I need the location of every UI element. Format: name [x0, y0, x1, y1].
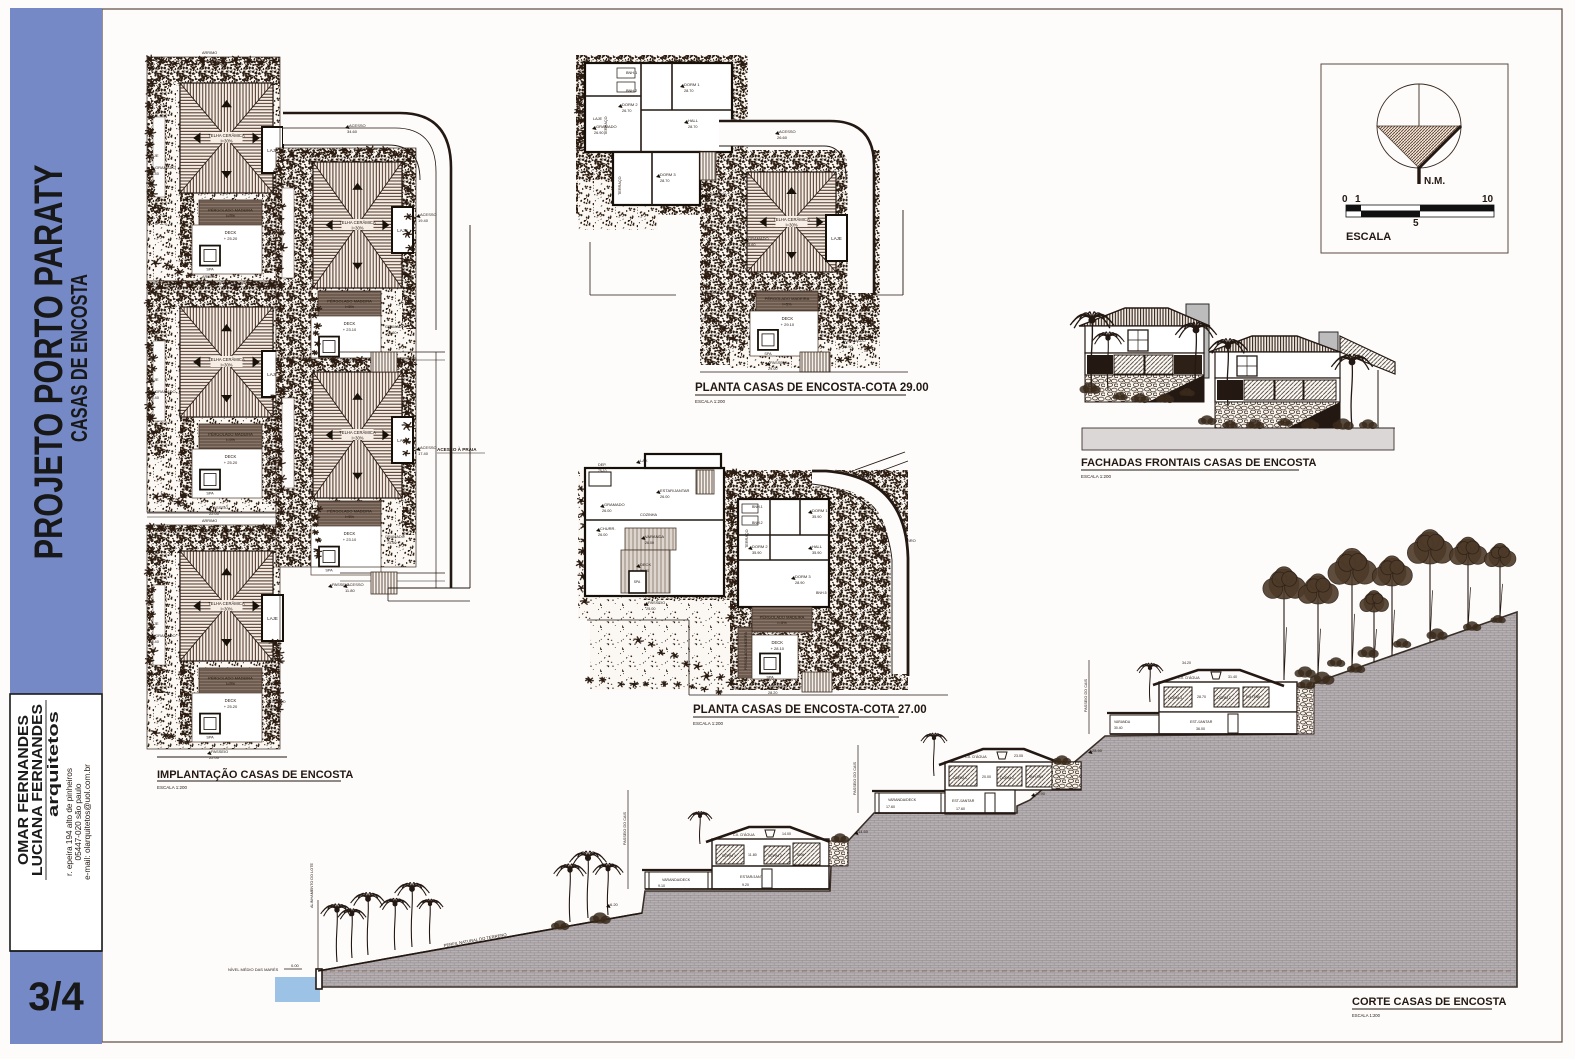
svg-text:23.05: 23.05 — [1014, 754, 1023, 758]
svg-text:ESTAR/JANTAR: ESTAR/JANTAR — [660, 488, 690, 493]
svg-text:5: 5 — [1413, 218, 1419, 229]
svg-text:ARRIMO: ARRIMO — [202, 51, 217, 55]
svg-text:PLANTA CASAS DE ENCOSTA-COTA 2: PLANTA CASAS DE ENCOSTA-COTA 27.00 — [693, 704, 927, 716]
svg-text:28.20: 28.20 — [768, 691, 778, 695]
svg-text:ALINHAMENTO DO LOTE: ALINHAMENTO DO LOTE — [310, 862, 314, 908]
svg-text:26.40: 26.40 — [149, 395, 160, 400]
svg-text:ACESSO: ACESSO — [347, 582, 364, 587]
svg-text:35.90: 35.90 — [812, 551, 822, 555]
svg-text:LAJE: LAJE — [149, 153, 159, 158]
svg-text:PÉRGOLADO MADEIRA: PÉRGOLADO MADEIRA — [208, 432, 253, 437]
svg-text:PASSEIO: PASSEIO — [648, 600, 665, 605]
svg-text:PLANTA CASAS DE ENCOSTA-COTA 2: PLANTA CASAS DE ENCOSTA-COTA 29.00 — [695, 382, 929, 394]
svg-text:25.60: 25.60 — [387, 331, 397, 335]
svg-text:PERGOLADO MADEIRA: PERGOLADO MADEIRA — [744, 631, 748, 670]
svg-text:r. epeira 194 alto de pinheir: r. epeira 194 alto de pinheiros — [65, 768, 74, 876]
svg-text:EST./JANTAR: EST./JANTAR — [952, 799, 975, 803]
svg-text:I=5%: I=5% — [226, 681, 236, 686]
svg-text:ACESSO: ACESSO — [779, 129, 796, 134]
svg-text:BNH BNH: BNH BNH — [1246, 695, 1261, 699]
svg-text:DECK: DECK — [344, 321, 356, 326]
svg-text:LAJE: LAJE — [267, 616, 278, 621]
svg-text:36.00: 36.00 — [1196, 727, 1205, 731]
svg-text:DORM 2: DORM 2 — [752, 544, 768, 549]
svg-text:ESCALA 1:200: ESCALA 1:200 — [693, 721, 724, 726]
svg-text:30.40: 30.40 — [1114, 726, 1123, 730]
svg-text:CORTE CASAS DE ENCOSTA: CORTE CASAS DE ENCOSTA — [1352, 996, 1506, 1008]
svg-text:+ 25.20: + 25.20 — [224, 704, 238, 709]
svg-text:14.00: 14.00 — [782, 832, 791, 836]
svg-text:25.00: 25.00 — [646, 607, 656, 611]
svg-text:GRAMADO: GRAMADO — [604, 502, 625, 507]
svg-text:GRAMADO: GRAMADO — [596, 124, 617, 129]
svg-text:PÉRGOLADO MADEIRA: PÉRGOLADO MADEIRA — [327, 509, 372, 514]
svg-text:28.90: 28.90 — [1092, 748, 1103, 753]
svg-text:25.10: 25.10 — [863, 511, 873, 515]
svg-text:+ 25.20: + 25.20 — [224, 460, 238, 465]
svg-text:+ 23.10: + 23.10 — [343, 327, 357, 332]
svg-text:I=30%: I=30% — [221, 139, 233, 144]
svg-text:VARANDA: VARANDA — [1114, 720, 1131, 724]
svg-text:e-mail: olarquitetos@uol.com.b: e-mail: olarquitetos@uol.com.br — [83, 764, 92, 880]
svg-text:DECK: DECK — [225, 454, 237, 459]
svg-text:+ 23.10: + 23.10 — [343, 537, 357, 542]
svg-text:17.60: 17.60 — [886, 805, 895, 809]
svg-text:ACESSO: ACESSO — [420, 212, 437, 217]
svg-text:17.60: 17.60 — [956, 807, 965, 811]
svg-text:TERRAÇO: TERRAÇO — [745, 529, 749, 548]
svg-text:29.00: 29.00 — [768, 367, 778, 371]
svg-text:26.90: 26.90 — [594, 131, 604, 135]
svg-text:VARANDA/DECK: VARANDA/DECK — [888, 798, 917, 802]
svg-text:25.60: 25.60 — [746, 243, 756, 247]
svg-text:DECK: DECK — [344, 531, 356, 536]
svg-text:35.90: 35.90 — [812, 515, 822, 519]
svg-text:19.40: 19.40 — [418, 218, 429, 223]
svg-text:I=5%: I=5% — [226, 437, 236, 442]
svg-text:DORM 1: DORM 1 — [953, 776, 967, 780]
svg-text:PÉRGOLADO MADEIRA: PÉRGOLADO MADEIRA — [208, 676, 253, 681]
svg-text:28.70: 28.70 — [660, 179, 670, 183]
svg-text:TELHA CERÂMICA: TELHA CERÂMICA — [773, 217, 810, 222]
svg-text:ARRIMO: ARRIMO — [735, 687, 750, 691]
svg-text:I=5%: I=5% — [345, 304, 355, 309]
svg-text:22.00: 22.00 — [209, 755, 220, 760]
svg-text:NÍVEL MÉDIO DAS MARÉS: NÍVEL MÉDIO DAS MARÉS — [228, 967, 279, 972]
svg-text:LAJE: LAJE — [149, 377, 159, 382]
svg-text:DORM 1: DORM 1 — [722, 854, 736, 858]
svg-text:26.70: 26.70 — [622, 109, 632, 113]
svg-text:LAJE: LAJE — [736, 220, 740, 230]
svg-text:DORM 2: DORM 2 — [622, 102, 638, 107]
svg-text:ESCALA 1:200: ESCALA 1:200 — [1081, 474, 1112, 479]
svg-text:DECK: DECK — [225, 230, 237, 235]
svg-text:DECK: DECK — [782, 316, 794, 321]
svg-text:11.80: 11.80 — [345, 588, 355, 593]
svg-text:35.90: 35.90 — [752, 551, 762, 555]
svg-text:DORM 3: DORM 3 — [660, 172, 676, 177]
svg-text:26.00: 26.00 — [602, 509, 612, 513]
svg-text:GRAMADO: GRAMADO — [155, 633, 176, 638]
svg-text:PASSEIO DO CAIS: PASSEIO DO CAIS — [853, 761, 857, 795]
svg-text:I=5%: I=5% — [345, 514, 355, 519]
svg-text:PASSEIO: PASSEIO — [211, 505, 228, 510]
svg-text:LAJE: LAJE — [831, 236, 842, 241]
svg-text:+ 29.10: + 29.10 — [781, 322, 795, 327]
svg-text:PASSEIO: PASSEIO — [770, 684, 787, 689]
svg-text:SPA: SPA — [325, 569, 333, 573]
svg-text:GRAMADO: GRAMADO — [704, 290, 725, 295]
svg-text:3/4: 3/4 — [28, 975, 84, 1019]
svg-text:arquitetos: arquitetos — [45, 711, 62, 817]
svg-text:CHURR.: CHURR. — [600, 526, 616, 531]
svg-text:TELHA CERÂMICA: TELHA CERÂMICA — [208, 601, 245, 606]
svg-text:23.00: 23.00 — [858, 633, 868, 637]
svg-text:I=5%: I=5% — [777, 620, 787, 625]
svg-text:0.00: 0.00 — [291, 963, 300, 968]
svg-text:BNH.2: BNH.2 — [626, 89, 637, 93]
svg-text:COZINHA: COZINHA — [640, 513, 658, 517]
svg-text:26.40: 26.40 — [149, 171, 160, 176]
svg-text:ESCALA: ESCALA — [1346, 231, 1391, 243]
svg-text:26.60: 26.60 — [777, 135, 788, 140]
svg-text:ARRIMO: ARRIMO — [202, 519, 217, 523]
svg-text:SPA: SPA — [206, 492, 214, 496]
svg-text:+ 28.10: + 28.10 — [771, 646, 785, 651]
svg-text:ACESSO: ACESSO — [349, 123, 366, 128]
svg-text:9.10: 9.10 — [658, 884, 665, 888]
svg-text:20.00: 20.00 — [982, 775, 991, 779]
svg-text:DEP.: DEP. — [598, 463, 606, 467]
svg-text:GRAMADO: GRAMADO — [266, 700, 286, 704]
svg-text:28.70: 28.70 — [684, 89, 694, 93]
svg-text:05447-020 são paulo: 05447-020 são paulo — [74, 783, 83, 860]
svg-text:IMPLANTAÇÃO CASAS DE ENCOSTA: IMPLANTAÇÃO CASAS DE ENCOSTA — [157, 768, 353, 781]
svg-text:ACESSO À PRAIA: ACESSO À PRAIA — [437, 446, 477, 452]
svg-text:BNH.2: BNH.2 — [752, 521, 763, 525]
svg-text:SPA: SPA — [206, 268, 214, 272]
svg-text:TELHA CERÂMICA: TELHA CERÂMICA — [208, 357, 245, 362]
svg-text:9.20: 9.20 — [742, 883, 749, 887]
svg-text:CX. D'ÁGUA: CX. D'ÁGUA — [965, 755, 987, 759]
svg-text:I=30%: I=30% — [221, 363, 233, 368]
svg-text:26.00: 26.00 — [645, 541, 654, 545]
svg-text:ARRIMO: ARRIMO — [202, 275, 217, 279]
svg-text:10: 10 — [1482, 194, 1494, 205]
svg-text:29.90: 29.90 — [843, 345, 853, 349]
svg-text:HALL: HALL — [688, 118, 699, 123]
svg-text:DORM 3: DORM 3 — [795, 574, 811, 579]
svg-text:BNH: BNH — [797, 853, 805, 857]
svg-text:75-10: 75-10 — [598, 469, 607, 473]
svg-text:SPA: SPA — [206, 736, 214, 740]
svg-text:VARANDA/DECK: VARANDA/DECK — [662, 878, 691, 882]
svg-text:ACESSO: ACESSO — [420, 445, 437, 450]
svg-text:28.70: 28.70 — [1197, 695, 1206, 699]
svg-text:SPA: SPA — [764, 352, 772, 356]
svg-text:DORM 2: DORM 2 — [768, 854, 782, 858]
svg-text:0: 0 — [1342, 194, 1348, 205]
svg-text:BNH.5: BNH.5 — [816, 591, 827, 595]
svg-text:DORM 1: DORM 1 — [684, 82, 700, 87]
svg-text:CX. D'ÁGUA: CX. D'ÁGUA — [733, 833, 755, 837]
svg-text:HALL: HALL — [812, 544, 823, 549]
svg-text:GRAMADO: GRAMADO — [155, 389, 176, 394]
svg-text:LAJE: LAJE — [593, 117, 603, 121]
svg-text:23.90: 23.90 — [702, 297, 712, 301]
svg-text:DORM 1: DORM 1 — [812, 508, 828, 513]
svg-text:DORM 3: DORM 3 — [1168, 696, 1182, 700]
svg-text:26.00: 26.00 — [598, 533, 608, 537]
svg-text:34.20: 34.20 — [1182, 661, 1191, 665]
svg-text:PROJETO PORTO PARATY: PROJETO PORTO PARATY — [27, 164, 71, 559]
svg-text:14.60: 14.60 — [858, 829, 869, 834]
svg-text:GRAMADO: GRAMADO — [385, 325, 405, 329]
svg-text:PASSEIO DO CAIS: PASSEIO DO CAIS — [1084, 678, 1088, 712]
svg-text:TELHA CERÂMICA: TELHA CERÂMICA — [339, 430, 376, 435]
svg-text:PASSEIO DO CAIS: PASSEIO DO CAIS — [623, 811, 627, 845]
svg-text:EST./JANTAR: EST./JANTAR — [1190, 720, 1213, 724]
svg-text:LUCIANA FERNANDES: LUCIANA FERNANDES — [30, 704, 46, 876]
svg-text:ARRIMO: ARRIMO — [700, 317, 715, 321]
svg-text:20.90: 20.90 — [1035, 791, 1046, 796]
svg-text:DECK: DECK — [640, 562, 651, 567]
svg-text:LAJE: LAJE — [149, 621, 159, 626]
svg-text:ESCALA 1:200: ESCALA 1:200 — [157, 785, 188, 790]
svg-text:GRAMADO: GRAMADO — [385, 535, 405, 539]
svg-text:BNH.1: BNH.1 — [752, 505, 763, 509]
svg-text:+ 25.20: + 25.20 — [224, 236, 238, 241]
svg-text:1: 1 — [1355, 194, 1361, 205]
svg-text:DECK: DECK — [771, 640, 783, 645]
svg-text:I=30%: I=30% — [352, 226, 364, 231]
svg-text:GRAMADO: GRAMADO — [155, 165, 176, 170]
svg-text:TELHA CERÂMICA: TELHA CERÂMICA — [339, 220, 376, 225]
svg-text:34.60: 34.60 — [347, 129, 358, 134]
svg-text:PÉRGOLADO MADEIRA: PÉRGOLADO MADEIRA — [327, 299, 372, 304]
svg-text:SPA: SPA — [766, 675, 774, 679]
svg-text:GRAMADO: GRAMADO — [845, 338, 866, 343]
svg-text:I=5%: I=5% — [782, 302, 792, 307]
svg-text:ESCALA 1:200: ESCALA 1:200 — [695, 399, 726, 404]
svg-text:TELHA CERÂMICA: TELHA CERÂMICA — [208, 133, 245, 138]
svg-text:VARANDA: VARANDA — [645, 534, 664, 539]
svg-text:6.20: 6.20 — [610, 902, 619, 907]
svg-text:ESCALA 1:200: ESCALA 1:200 — [1352, 1013, 1381, 1018]
svg-text:CASAS DE ENCOSTA: CASAS DE ENCOSTA — [66, 274, 92, 442]
svg-text:GRAMADO: GRAMADO — [748, 236, 769, 241]
svg-text:DORM 2: DORM 2 — [1217, 696, 1231, 700]
svg-text:I=30%: I=30% — [221, 607, 233, 612]
svg-text:N.M.: N.M. — [1424, 176, 1445, 187]
svg-text:26.00: 26.00 — [660, 495, 670, 499]
svg-text:DECK: DECK — [225, 698, 237, 703]
svg-text:PASSEIO: PASSEIO — [770, 360, 787, 365]
svg-text:PÉRGOLADO MADEIRA: PÉRGOLADO MADEIRA — [208, 208, 253, 213]
svg-text:LAV.: LAV. — [640, 458, 648, 463]
svg-text:FACHADAS FRONTAIS CASAS DE ENC: FACHADAS FRONTAIS CASAS DE ENCOSTA — [1081, 457, 1317, 469]
svg-text:GRAMADO: GRAMADO — [860, 626, 881, 631]
svg-text:25.00: 25.00 — [268, 706, 278, 710]
svg-text:BNH BNH: BNH BNH — [1029, 775, 1044, 779]
svg-text:I=30%: I=30% — [786, 223, 798, 228]
svg-text:TERRAÇO: TERRAÇO — [618, 176, 622, 195]
svg-text:I=5%: I=5% — [226, 213, 236, 218]
svg-text:26.90: 26.90 — [704, 199, 714, 203]
svg-text:25.60: 25.60 — [387, 541, 397, 545]
svg-text:DORM 2: DORM 2 — [1000, 776, 1014, 780]
svg-text:17.40: 17.40 — [418, 451, 429, 456]
svg-text:26.40: 26.40 — [149, 639, 160, 644]
svg-text:CX. D'ÁGUA: CX. D'ÁGUA — [1178, 676, 1200, 680]
svg-text:PASSEIO: PASSEIO — [211, 749, 228, 754]
svg-text:GRAMADO: GRAMADO — [706, 192, 727, 197]
svg-text:31.40: 31.40 — [1228, 675, 1237, 679]
svg-text:PÉRGOLADO MADEIRA: PÉRGOLADO MADEIRA — [765, 296, 810, 301]
svg-text:PÉRGOLADO MADEIRA: PÉRGOLADO MADEIRA — [760, 615, 805, 620]
svg-text:I=30%: I=30% — [352, 436, 364, 441]
svg-text:SPA: SPA — [634, 580, 641, 584]
svg-text:28.90: 28.90 — [795, 581, 805, 585]
svg-text:28.70: 28.70 — [688, 125, 698, 129]
svg-text:BNH.1: BNH.1 — [626, 71, 637, 75]
svg-text:11.80: 11.80 — [748, 853, 757, 857]
